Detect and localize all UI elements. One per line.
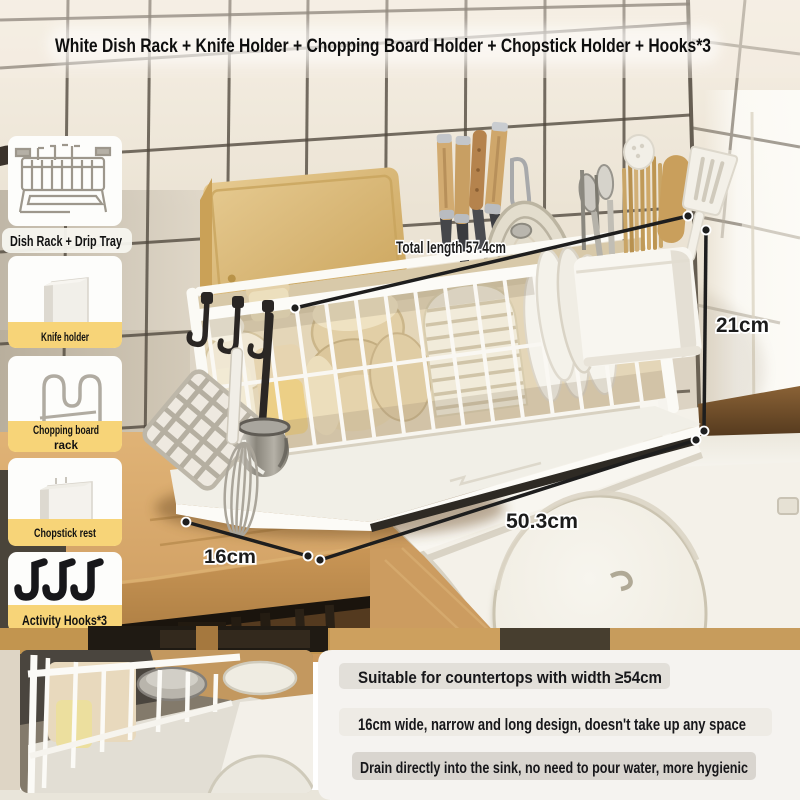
svg-text:Activity Hooks*3: Activity Hooks*3	[22, 612, 107, 628]
svg-text:16cm wide, narrow and long des: 16cm wide, narrow and long design, doesn…	[358, 716, 746, 734]
svg-text:Dish Rack + Drip Tray: Dish Rack + Drip Tray	[10, 234, 122, 250]
svg-text:Total length 57.4cm: Total length 57.4cm	[396, 238, 506, 257]
svg-text:50.3cm: 50.3cm	[506, 510, 578, 533]
svg-text:White Dish Rack + Knife Holder: White Dish Rack + Knife Holder + Choppin…	[55, 35, 711, 57]
svg-text:rack: rack	[54, 438, 78, 452]
svg-text:21cm: 21cm	[716, 314, 769, 337]
svg-text:16cm: 16cm	[204, 547, 256, 568]
svg-text:Chopstick rest: Chopstick rest	[34, 526, 96, 540]
svg-text:Suitable for countertops with: Suitable for countertops with width ≥54c…	[358, 669, 662, 687]
svg-text:Chopping board: Chopping board	[33, 423, 99, 437]
svg-text:Knife holder: Knife holder	[41, 330, 89, 344]
svg-text:Drain directly into the sink,: Drain directly into the sink, no need to…	[360, 760, 748, 777]
